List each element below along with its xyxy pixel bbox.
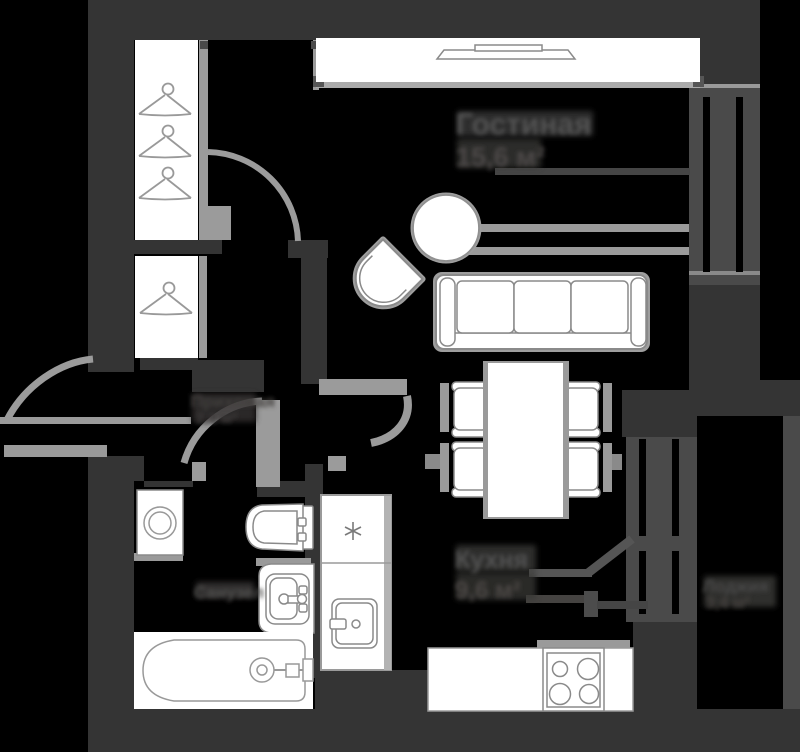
svg-text:Гостиная: Гостиная	[456, 108, 592, 141]
svg-text:Прихожая: Прихожая	[191, 392, 275, 411]
svg-text:9,6 м²: 9,6 м²	[455, 577, 521, 604]
svg-text:Кухня: Кухня	[455, 546, 528, 574]
svg-text:3,4 м²: 3,4 м²	[706, 595, 750, 612]
svg-text:15,6 м²: 15,6 м²	[456, 142, 545, 172]
svg-text:Санузел: Санузел	[194, 583, 264, 602]
svg-text:Лоджия: Лоджия	[703, 577, 768, 596]
svg-text:2,1 м²: 2,1 м²	[196, 410, 237, 427]
